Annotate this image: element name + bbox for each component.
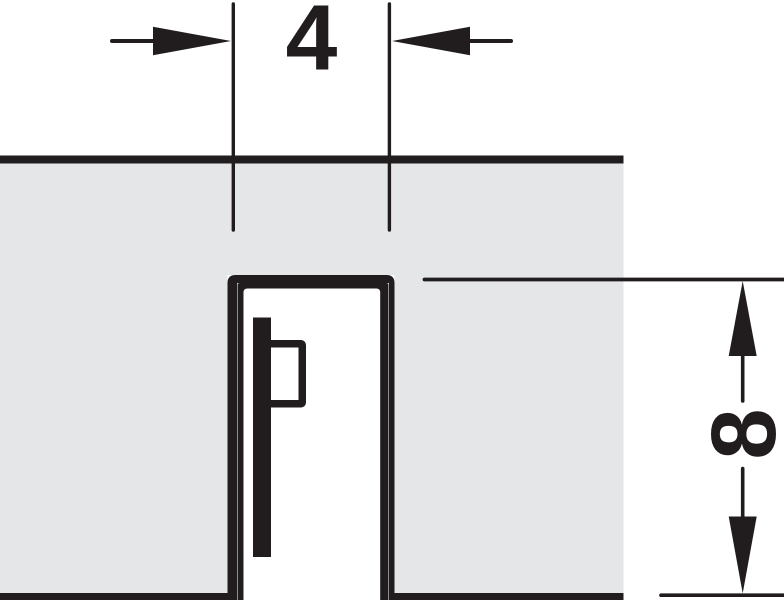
svg-text:8: 8 [693, 408, 784, 459]
svg-text:4: 4 [286, 0, 338, 90]
